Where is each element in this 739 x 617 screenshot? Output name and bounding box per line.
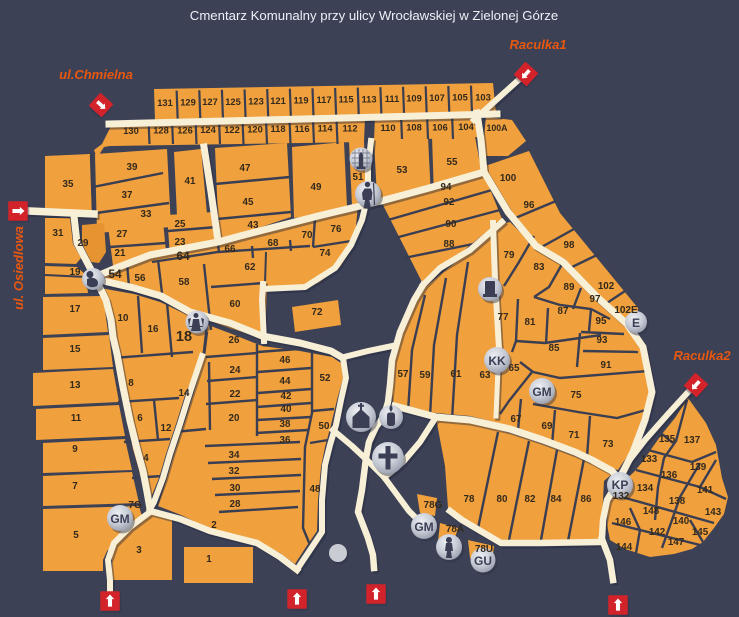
svg-text:82: 82 (525, 494, 536, 505)
svg-text:93: 93 (597, 335, 608, 346)
svg-text:119: 119 (294, 96, 309, 106)
svg-text:67: 67 (511, 414, 522, 425)
svg-text:4: 4 (143, 453, 149, 464)
svg-text:130: 130 (123, 126, 139, 136)
svg-text:98: 98 (564, 240, 575, 251)
svg-text:61: 61 (451, 369, 462, 380)
svg-text:135: 135 (659, 434, 676, 445)
svg-text:27: 27 (117, 229, 128, 240)
svg-text:147: 147 (668, 537, 685, 548)
svg-text:96: 96 (524, 200, 535, 211)
svg-text:54: 54 (108, 267, 122, 281)
svg-text:KP: KP (612, 478, 629, 492)
svg-text:100A: 100A (486, 123, 508, 133)
svg-text:2: 2 (211, 520, 217, 531)
svg-text:128: 128 (153, 126, 169, 136)
svg-text:24: 24 (230, 365, 241, 376)
svg-text:76: 76 (331, 224, 342, 235)
svg-text:7G: 7G (128, 500, 142, 511)
svg-text:118: 118 (271, 124, 286, 134)
svg-text:139: 139 (690, 462, 707, 473)
svg-text:15: 15 (70, 344, 81, 355)
svg-text:37: 37 (122, 190, 133, 201)
svg-text:60: 60 (230, 299, 241, 310)
svg-text:90: 90 (446, 219, 457, 230)
svg-text:89: 89 (564, 282, 575, 293)
svg-text:25: 25 (175, 219, 186, 230)
svg-text:95: 95 (596, 316, 607, 327)
svg-text:113: 113 (362, 94, 377, 104)
svg-text:GU: GU (474, 554, 492, 568)
svg-text:ul.Chmielna: ul.Chmielna (59, 67, 133, 82)
svg-text:35: 35 (63, 179, 74, 190)
svg-text:13: 13 (70, 380, 81, 391)
svg-text:81: 81 (525, 317, 536, 328)
svg-text:73: 73 (603, 439, 614, 450)
svg-text:KK: KK (488, 354, 506, 368)
svg-text:57: 57 (398, 369, 409, 380)
svg-text:53: 53 (397, 165, 408, 176)
svg-text:63: 63 (480, 370, 491, 381)
svg-text:28: 28 (230, 499, 241, 510)
svg-text:138: 138 (669, 496, 686, 507)
svg-text:6: 6 (137, 413, 143, 424)
svg-text:3: 3 (136, 545, 142, 556)
svg-text:68: 68 (268, 238, 279, 249)
svg-text:75: 75 (571, 390, 582, 401)
svg-text:33: 33 (141, 209, 152, 220)
svg-text:41: 41 (185, 176, 196, 187)
svg-text:9: 9 (72, 444, 78, 455)
svg-text:14: 14 (179, 388, 190, 399)
svg-text:64: 64 (176, 249, 190, 263)
svg-text:22: 22 (230, 389, 241, 400)
svg-text:34: 34 (229, 450, 240, 461)
svg-text:71: 71 (569, 430, 580, 441)
svg-text:87: 87 (558, 306, 569, 317)
svg-text:43: 43 (248, 220, 259, 231)
svg-text:133: 133 (641, 454, 658, 465)
svg-text:45: 45 (243, 197, 254, 208)
svg-text:49: 49 (311, 182, 322, 193)
svg-text:7: 7 (72, 481, 78, 492)
svg-text:40: 40 (281, 404, 292, 415)
svg-text:38: 38 (280, 419, 291, 430)
svg-text:116: 116 (295, 124, 310, 134)
svg-text:36: 36 (280, 435, 291, 446)
svg-text:44: 44 (280, 376, 291, 387)
svg-text:11: 11 (71, 413, 82, 424)
svg-text:Raculka2: Raculka2 (673, 348, 731, 363)
svg-text:142: 142 (649, 527, 666, 538)
svg-text:146: 146 (615, 517, 632, 528)
svg-text:126: 126 (177, 125, 193, 135)
svg-text:97: 97 (590, 294, 601, 305)
svg-text:17: 17 (70, 304, 81, 315)
svg-text:134: 134 (637, 483, 654, 494)
svg-text:8: 8 (128, 378, 134, 389)
svg-text:21: 21 (115, 248, 126, 259)
svg-text:48: 48 (310, 484, 321, 495)
svg-text:30: 30 (230, 483, 241, 494)
svg-text:79: 79 (504, 250, 515, 261)
svg-text:131: 131 (157, 98, 173, 108)
svg-text:127: 127 (202, 97, 218, 107)
svg-text:56: 56 (135, 273, 146, 284)
svg-text:123: 123 (248, 96, 264, 106)
svg-text:16: 16 (148, 324, 159, 335)
svg-text:85: 85 (549, 343, 560, 354)
svg-text:77: 77 (498, 312, 509, 323)
svg-text:117: 117 (317, 95, 332, 105)
svg-text:144: 144 (616, 542, 633, 553)
svg-text:74: 74 (320, 248, 331, 259)
svg-text:78: 78 (464, 494, 475, 505)
svg-text:46: 46 (280, 355, 291, 366)
svg-text:110: 110 (381, 123, 396, 133)
svg-text:125: 125 (225, 97, 241, 107)
svg-text:GM: GM (110, 512, 129, 526)
svg-text:122: 122 (224, 125, 240, 135)
svg-text:88: 88 (444, 239, 455, 250)
svg-text:19: 19 (70, 267, 81, 278)
svg-text:102E: 102E (614, 305, 638, 316)
svg-text:GM: GM (414, 520, 433, 534)
svg-text:5: 5 (73, 530, 79, 541)
svg-text:51: 51 (353, 172, 364, 183)
svg-text:55: 55 (447, 157, 458, 168)
svg-text:18: 18 (176, 329, 192, 345)
svg-text:137: 137 (684, 435, 701, 446)
svg-text:140: 140 (673, 516, 690, 527)
svg-text:23: 23 (175, 237, 186, 248)
svg-text:129: 129 (180, 98, 196, 108)
svg-text:12: 12 (161, 423, 172, 434)
svg-text:Cmentarz Komunalny przy ulicy: Cmentarz Komunalny przy ulicy Wrocławski… (190, 8, 558, 23)
svg-text:120: 120 (247, 125, 263, 135)
svg-text:80: 80 (497, 494, 508, 505)
svg-text:141: 141 (697, 485, 714, 496)
svg-text:1: 1 (206, 554, 212, 565)
svg-text:94: 94 (441, 182, 452, 193)
svg-text:100: 100 (500, 173, 517, 184)
svg-text:42: 42 (281, 391, 292, 402)
svg-text:59: 59 (420, 370, 431, 381)
svg-text:105: 105 (452, 93, 468, 103)
svg-text:114: 114 (318, 124, 334, 134)
svg-text:72: 72 (312, 307, 323, 318)
svg-text:132: 132 (613, 491, 630, 502)
svg-text:136: 136 (661, 470, 678, 481)
svg-text:107: 107 (429, 93, 445, 103)
svg-text:112: 112 (343, 123, 358, 133)
svg-text:47: 47 (240, 163, 251, 174)
svg-text:Raculka1: Raculka1 (509, 37, 566, 52)
svg-text:103: 103 (475, 92, 491, 102)
svg-text:39: 39 (127, 162, 138, 173)
svg-text:E: E (632, 316, 640, 330)
svg-text:92: 92 (444, 197, 455, 208)
svg-text:50: 50 (319, 421, 330, 432)
svg-text:69: 69 (542, 421, 553, 432)
svg-text:78U: 78U (475, 544, 493, 555)
svg-text:ul. Osiedlowa: ul. Osiedlowa (11, 226, 26, 310)
svg-text:145: 145 (692, 527, 709, 538)
svg-text:124: 124 (200, 125, 216, 135)
svg-text:143: 143 (705, 507, 722, 518)
svg-text:84: 84 (551, 494, 562, 505)
svg-text:111: 111 (385, 94, 400, 104)
svg-text:70: 70 (302, 230, 313, 241)
svg-text:78A: 78A (446, 524, 464, 535)
svg-text:66: 66 (225, 244, 236, 255)
svg-text:62: 62 (245, 262, 256, 273)
svg-text:148: 148 (643, 506, 660, 517)
svg-text:102: 102 (598, 281, 615, 292)
svg-text:20: 20 (229, 413, 240, 424)
svg-text:104: 104 (458, 122, 474, 132)
svg-text:115: 115 (339, 95, 354, 105)
svg-text:32: 32 (229, 466, 240, 477)
svg-text:31: 31 (53, 228, 64, 239)
svg-text:121: 121 (270, 96, 286, 106)
svg-text:108: 108 (406, 123, 422, 133)
svg-text:GM: GM (532, 385, 551, 399)
svg-text:58: 58 (179, 277, 190, 288)
svg-text:83: 83 (534, 262, 545, 273)
svg-text:109: 109 (406, 94, 422, 104)
svg-text:26: 26 (229, 335, 240, 346)
svg-text:29: 29 (78, 238, 89, 249)
svg-text:10: 10 (118, 313, 129, 324)
svg-text:91: 91 (601, 360, 612, 371)
svg-text:78G: 78G (424, 500, 443, 511)
svg-text:52: 52 (320, 373, 331, 384)
svg-text:86: 86 (581, 494, 592, 505)
svg-text:106: 106 (432, 122, 448, 132)
